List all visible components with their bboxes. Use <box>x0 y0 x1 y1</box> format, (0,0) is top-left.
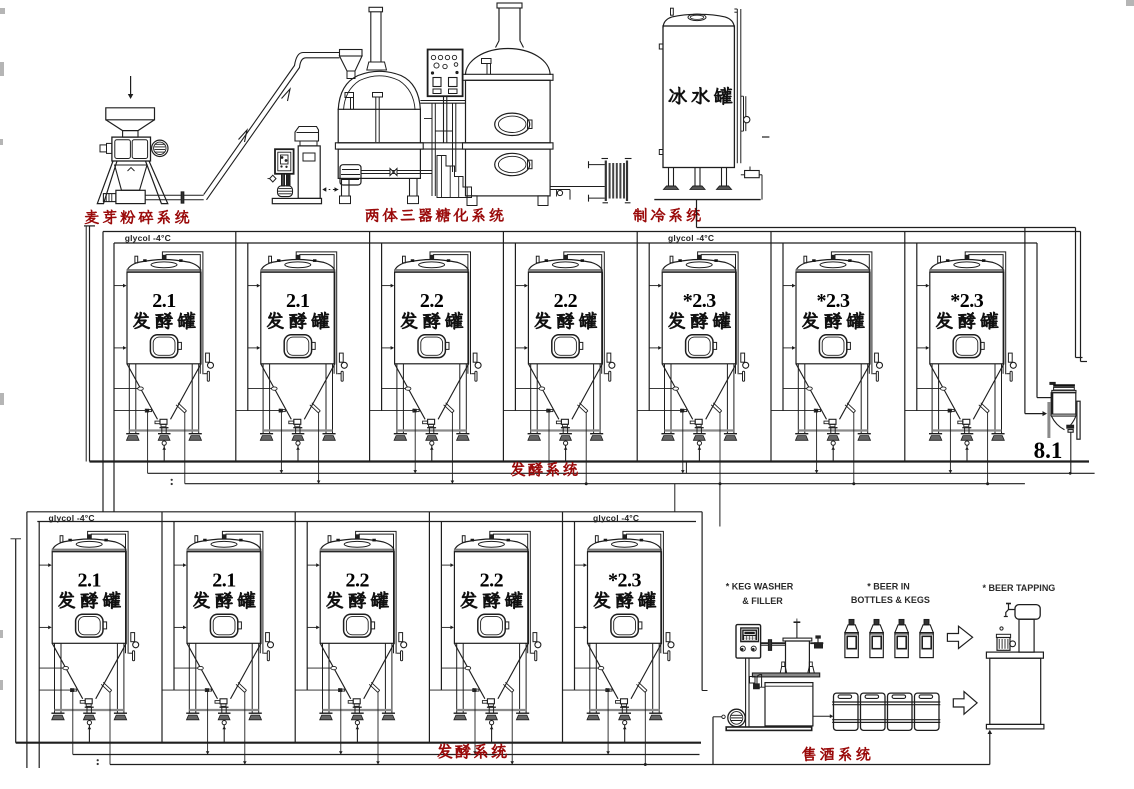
svg-text:2.2: 2.2 <box>480 569 504 591</box>
svg-text:* KEG WASHER: * KEG WASHER <box>726 582 794 592</box>
svg-text:2.2: 2.2 <box>554 290 578 312</box>
svg-text:2.1: 2.1 <box>286 290 310 312</box>
svg-text:2.1: 2.1 <box>77 569 101 591</box>
svg-text:2.1: 2.1 <box>212 569 236 591</box>
svg-text:BOTTLES & KEGS: BOTTLES & KEGS <box>851 595 930 605</box>
svg-text:glycol -4°C: glycol -4°C <box>668 233 714 243</box>
svg-text:* BEER TAPPING: * BEER TAPPING <box>982 583 1055 593</box>
svg-text:2.2: 2.2 <box>345 569 369 591</box>
svg-text:*2.3: *2.3 <box>608 569 642 591</box>
svg-text:* BEER IN: * BEER IN <box>867 582 910 592</box>
svg-text:glycol -4°C: glycol -4°C <box>49 513 95 523</box>
svg-text:2.2: 2.2 <box>420 290 444 312</box>
svg-text:8.1: 8.1 <box>1034 438 1063 463</box>
svg-text:2.1: 2.1 <box>152 290 176 312</box>
svg-text:*2.3: *2.3 <box>950 290 984 312</box>
svg-text:glycol -4°C: glycol -4°C <box>593 513 639 523</box>
svg-text:*2.3: *2.3 <box>817 290 851 312</box>
svg-text:& FILLER: & FILLER <box>742 596 783 606</box>
svg-text:*2.3: *2.3 <box>683 290 717 312</box>
svg-text:glycol -4°C: glycol -4°C <box>125 233 171 243</box>
